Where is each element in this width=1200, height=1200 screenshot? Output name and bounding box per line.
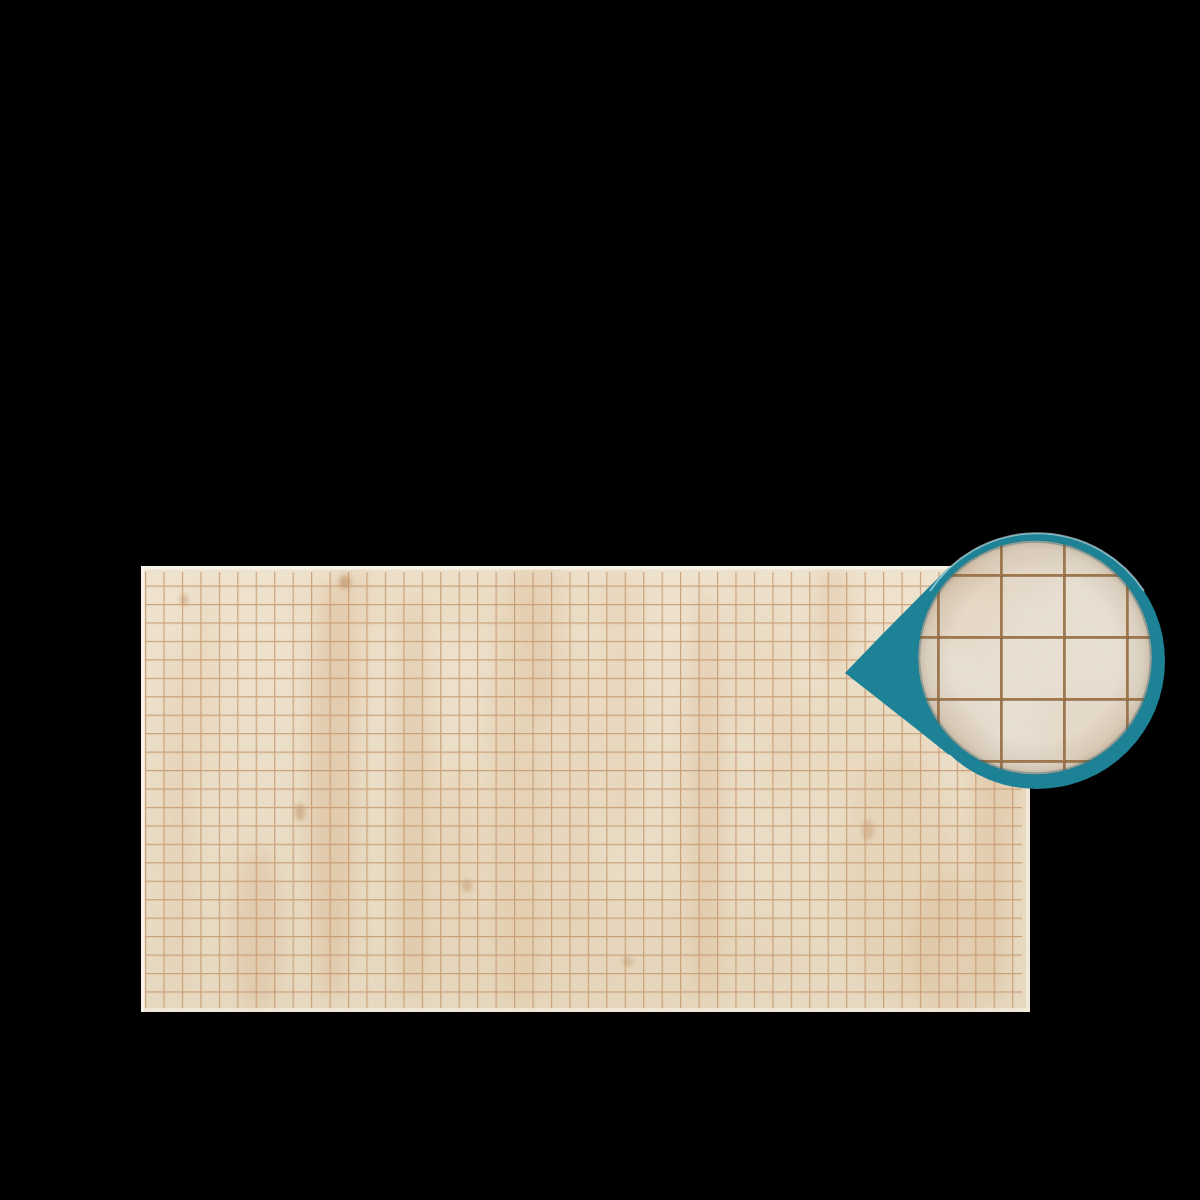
product-image bbox=[0, 0, 1200, 1200]
battle-mat-photo bbox=[0, 0, 1200, 1200]
